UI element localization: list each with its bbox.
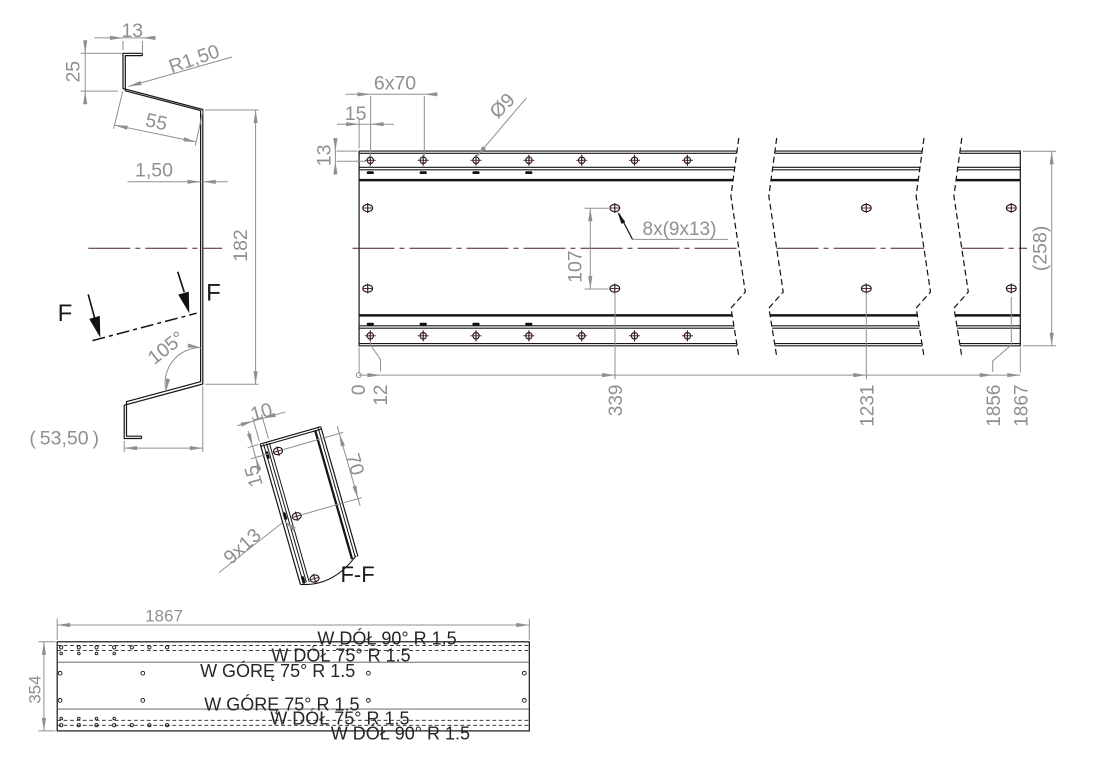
svg-text:12: 12 bbox=[371, 385, 392, 406]
svg-text:W GÓRĘ 75° R 1.5: W GÓRĘ 75° R 1.5 bbox=[200, 660, 355, 681]
svg-text:8x(9x13): 8x(9x13) bbox=[643, 219, 717, 240]
svg-text:F: F bbox=[58, 300, 73, 327]
svg-text:( 53,50 ): ( 53,50 ) bbox=[29, 428, 99, 450]
svg-text:107: 107 bbox=[565, 250, 587, 283]
svg-text:(258): (258) bbox=[1030, 226, 1052, 272]
svg-text:F: F bbox=[206, 279, 221, 306]
svg-text:13: 13 bbox=[121, 20, 143, 42]
svg-text:1856: 1856 bbox=[984, 385, 1005, 427]
svg-text:15: 15 bbox=[240, 462, 267, 489]
svg-text:13: 13 bbox=[313, 145, 335, 167]
svg-text:R1,50: R1,50 bbox=[166, 40, 223, 78]
svg-text:1,50: 1,50 bbox=[135, 159, 173, 181]
svg-text:10: 10 bbox=[248, 399, 275, 426]
svg-text:182: 182 bbox=[230, 229, 252, 262]
svg-text:25: 25 bbox=[63, 61, 85, 83]
svg-text:0: 0 bbox=[349, 385, 370, 396]
svg-text:1867: 1867 bbox=[1011, 385, 1032, 427]
svg-text:339: 339 bbox=[606, 385, 627, 417]
svg-text:Ø9: Ø9 bbox=[486, 89, 520, 123]
svg-text:105°: 105° bbox=[144, 327, 189, 369]
svg-text:F-F: F-F bbox=[340, 562, 374, 587]
svg-text:W DÓŁ 90° R 1.5: W DÓŁ 90° R 1.5 bbox=[331, 723, 470, 744]
svg-text:9x13: 9x13 bbox=[219, 524, 265, 569]
svg-text:1231: 1231 bbox=[857, 385, 878, 427]
svg-text:1867: 1867 bbox=[145, 607, 183, 626]
svg-text:70: 70 bbox=[341, 451, 368, 478]
svg-text:6x70: 6x70 bbox=[374, 72, 416, 94]
svg-text:15: 15 bbox=[345, 103, 367, 125]
svg-text:354: 354 bbox=[26, 675, 45, 703]
